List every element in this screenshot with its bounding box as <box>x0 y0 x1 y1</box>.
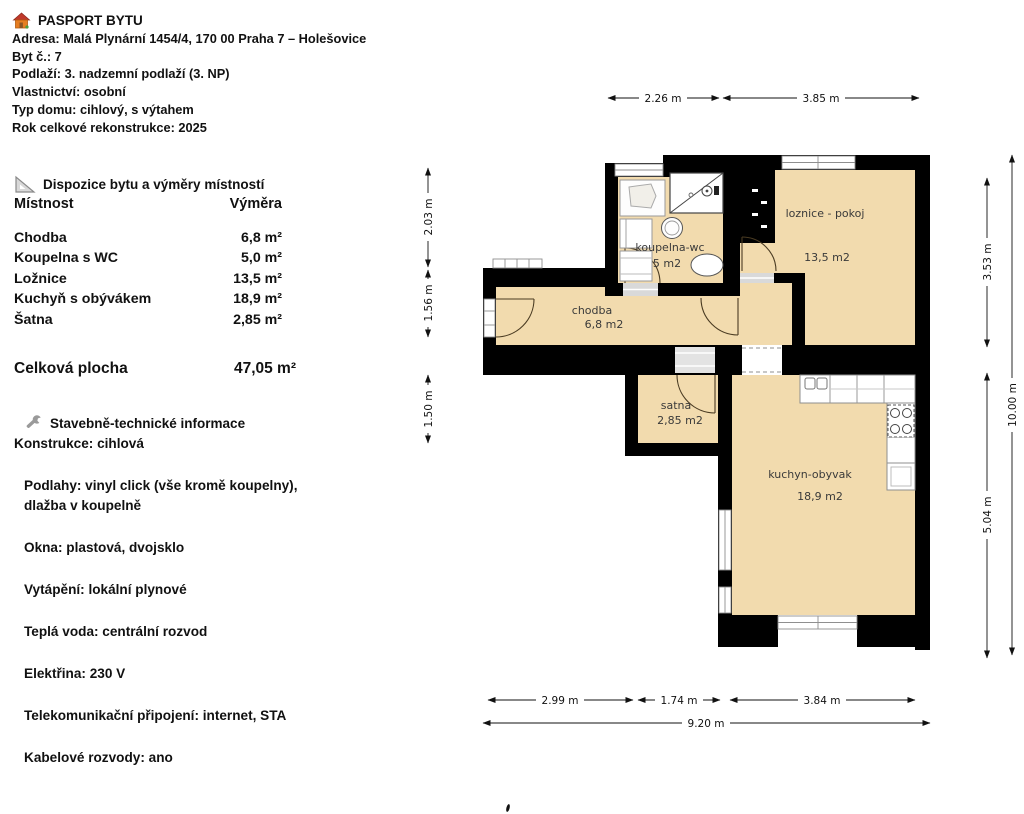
room-label: loznice - pokoj <box>786 207 865 220</box>
table-row-value: 6,8 m² <box>210 228 282 248</box>
pasport-bytu-document: { "colors": {"room_fill":"#f2dbae","wall… <box>0 0 1024 814</box>
wrench-icon <box>24 414 43 432</box>
dim-bottom-3: 3.84 m <box>730 693 915 707</box>
col-header-area: Výměra <box>210 194 282 214</box>
table-row-label: Kuchyň s obývákem <box>14 289 210 309</box>
entry-door-opening <box>484 299 495 337</box>
stray-mark <box>505 804 510 813</box>
tech-line: Kabelové rozvody: ano <box>24 748 394 768</box>
col-header-room: Místnost <box>14 194 210 214</box>
room-label: chodba <box>572 304 612 317</box>
svg-text:2.03 m: 2.03 m <box>423 199 435 236</box>
dim-bottom-overall: 9.20 m <box>483 716 930 730</box>
shaft <box>723 155 775 243</box>
page-title: PASPORT BYTU <box>38 13 143 28</box>
kitchen-left-window <box>719 510 731 570</box>
svg-text:3.53 m: 3.53 m <box>982 244 994 281</box>
kitchen-left-window-2 <box>719 587 731 613</box>
svg-text:3.84 m: 3.84 m <box>804 695 841 707</box>
bathroom-window <box>615 164 663 176</box>
room-hallway-vestibule <box>740 283 792 347</box>
header-unit: Byt č.: 7 <box>12 48 412 66</box>
floorplan: koupelna-wc 5 m2 loznice - pokoj 13,5 m2… <box>420 85 1024 814</box>
tech-line: Konstrukce: cihlová <box>14 434 394 454</box>
shower <box>670 173 723 213</box>
room-area-label: 2,85 m2 <box>657 414 703 427</box>
table-row-label: Ložnice <box>14 269 210 289</box>
total-area-row: Celková plocha 47,05 m² <box>14 360 314 378</box>
document-header: PASPORT BYTU Adresa: Malá Plynární 1454/… <box>12 10 412 136</box>
bedroom-window <box>782 156 855 169</box>
total-label: Celková plocha <box>14 360 204 378</box>
tech-line: Telekomunikační připojení: internet, STA <box>24 706 394 726</box>
header-reconstruction: Rok celkové rekonstrukce: 2025 <box>12 119 412 137</box>
room-area-label: 6,8 m2 <box>585 318 624 331</box>
table-row-label: Chodba <box>14 228 210 248</box>
tech-section-title: Stavebně-technické informace <box>50 416 245 431</box>
house-icon <box>12 12 31 29</box>
svg-text:1.50 m: 1.50 m <box>423 391 435 428</box>
dim-top-1: 2.26 m <box>608 91 719 105</box>
dim-bottom-2: 1.74 m <box>638 693 720 707</box>
header-ownership: Vlastnictví: osobní <box>12 83 412 101</box>
table-row-value: 18,9 m² <box>210 289 282 309</box>
dim-right-2: 5.04 m <box>981 373 994 658</box>
dim-bottom-1: 2.99 m <box>488 693 633 707</box>
total-value: 47,05 m² <box>204 360 296 378</box>
tech-line: Vytápění: lokální plynové <box>24 580 394 600</box>
header-building-type: Typ domu: cihlový, s výtahem <box>12 101 412 119</box>
svg-text:2.26 m: 2.26 m <box>645 93 682 105</box>
room-label: satna <box>661 399 692 412</box>
dim-left-1: 2.03 m <box>422 168 435 267</box>
rooms-section-title: Dispozice bytu a výměry místností <box>43 177 264 192</box>
svg-text:9.20 m: 9.20 m <box>688 718 725 730</box>
dim-top-2: 3.85 m <box>723 91 919 105</box>
svg-text:10.00 m: 10.00 m <box>1007 383 1019 427</box>
sink <box>662 218 683 239</box>
tech-line: Podlahy: vinyl click (vše kromě koupelny… <box>24 476 394 516</box>
tech-line: Teplá voda: centrální rozvod <box>24 622 394 642</box>
dim-right-1: 3.53 m <box>981 178 994 347</box>
svg-text:5.04 m: 5.04 m <box>982 497 994 534</box>
table-row-value: 5,0 m² <box>210 248 282 268</box>
table-row-label: Šatna <box>14 310 210 330</box>
svg-text:2.99 m: 2.99 m <box>542 695 579 707</box>
header-floor: Podlaží: 3. nadzemní podlaží (3. NP) <box>12 65 412 83</box>
stove <box>888 405 914 437</box>
tech-section: Stavebně-technické informace Konstrukce:… <box>14 413 394 768</box>
toilet <box>691 254 723 276</box>
hallway-top-window <box>493 259 542 268</box>
svg-text:3.85 m: 3.85 m <box>803 93 840 105</box>
room-area-label: 5 m2 <box>653 257 681 270</box>
svg-text:1.56 m: 1.56 m <box>423 285 435 322</box>
dim-left-3: 1.50 m <box>422 375 435 443</box>
room-label: koupelna-wc <box>635 241 704 254</box>
rooms-table: Místnost Výměra Chodba 6,8 m² Koupelna s… <box>14 194 314 330</box>
kitchen-bottom-window <box>778 616 857 629</box>
set-square-icon <box>14 175 36 194</box>
tech-line: Elektřina: 230 V <box>24 664 394 684</box>
dim-left-2: 1.56 m <box>422 270 435 337</box>
bath-cabinet <box>620 251 652 281</box>
table-row-value: 2,85 m² <box>210 310 282 330</box>
kitchen-passage <box>742 345 782 375</box>
dim-right-overall: 10.00 m <box>1006 155 1019 655</box>
table-row-value: 13,5 m² <box>210 269 282 289</box>
room-area-label: 18,9 m2 <box>797 490 843 503</box>
table-row-label: Koupelna s WC <box>14 248 210 268</box>
room-area-label: 13,5 m2 <box>804 251 850 264</box>
room-label: kuchyn-obyvak <box>768 468 852 481</box>
svg-text:1.74 m: 1.74 m <box>661 695 698 707</box>
washbasin-cabinet <box>620 180 665 216</box>
tech-line: Okna: plastová, dvojsklo <box>24 538 394 558</box>
header-address: Adresa: Malá Plynární 1454/4, 170 00 Pra… <box>12 30 412 48</box>
rooms-section: Dispozice bytu a výměry místností Místno… <box>14 174 314 378</box>
